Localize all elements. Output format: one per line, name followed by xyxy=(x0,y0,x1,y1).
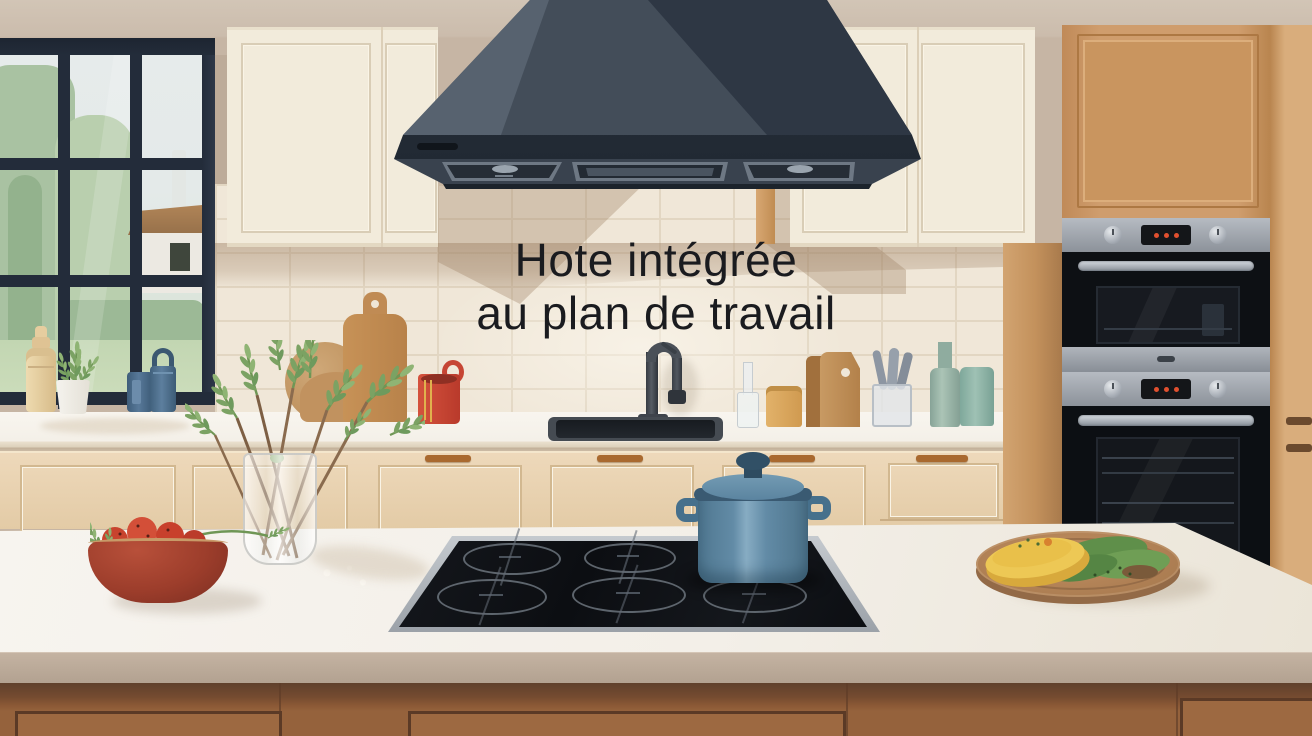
island-divider xyxy=(846,683,848,736)
drawer-handle-dark xyxy=(1286,417,1312,425)
board-food xyxy=(980,520,1180,595)
display-dot xyxy=(1154,387,1159,392)
sink xyxy=(548,417,723,441)
rack-line xyxy=(1102,502,1234,504)
faucet-spray-head xyxy=(668,390,686,404)
island-panel xyxy=(1180,698,1312,736)
hood-light-left xyxy=(492,165,518,173)
container-silhouette xyxy=(1202,304,1224,336)
base-door-handle xyxy=(597,455,643,462)
oven-display xyxy=(1141,225,1191,245)
glass-bottle xyxy=(737,362,757,426)
sill-plant-leaves xyxy=(52,338,100,386)
bowl-rim xyxy=(88,538,228,548)
drawer-stack xyxy=(880,451,1003,529)
counter-highlight xyxy=(40,418,190,434)
island-panel xyxy=(408,711,846,736)
display-dot xyxy=(1174,233,1179,238)
glass-bottle-neck xyxy=(743,362,753,395)
knife-block-front xyxy=(820,352,860,427)
teal-canister xyxy=(960,367,994,426)
green-glass-bottle xyxy=(930,342,960,427)
mid-strip-vent xyxy=(1157,356,1175,362)
rack-line xyxy=(1102,472,1234,474)
oven-lower-control-panel xyxy=(1062,372,1270,406)
glass-bottle-body xyxy=(737,392,759,428)
island-base xyxy=(0,683,1312,736)
oven-knob xyxy=(1209,226,1227,244)
window-mullion-h2 xyxy=(0,275,202,287)
oven-display xyxy=(1141,379,1191,399)
hood-light-right xyxy=(787,165,813,173)
display-dot xyxy=(1154,233,1159,238)
base-door-handle xyxy=(425,455,471,462)
base-door xyxy=(550,465,694,531)
blue-canister xyxy=(150,348,176,412)
glass-reflection xyxy=(1121,286,1178,344)
blue-canister-band xyxy=(153,372,173,374)
wood-door-panel xyxy=(1077,34,1259,208)
window-mullion-h1 xyxy=(0,158,202,170)
island-panel xyxy=(15,711,282,736)
hood-light-left-bar xyxy=(495,175,513,177)
island-edge-band xyxy=(0,652,1312,684)
oven-handle xyxy=(1078,261,1254,271)
window-mullion-v2 xyxy=(130,55,142,409)
display-dot xyxy=(1164,233,1169,238)
window-frame-top xyxy=(0,38,215,55)
mug-stripe xyxy=(430,380,432,422)
drawer-front xyxy=(888,463,999,519)
drawer-handle-dark xyxy=(1286,444,1312,452)
faucet-downpipe xyxy=(672,358,682,392)
caption-line-1: Hote intégrée xyxy=(306,234,1006,287)
sill-plant xyxy=(52,338,100,414)
oven-upper-control-panel xyxy=(1062,218,1270,252)
oven-handle xyxy=(1078,415,1254,426)
faucet xyxy=(620,340,700,422)
knife-block-hole xyxy=(841,368,850,377)
oven-knob xyxy=(1104,226,1122,244)
kitchen-illustration: Hote intégrée au plan de travail xyxy=(0,0,1312,736)
cabinet-door xyxy=(241,43,371,233)
mug-interior xyxy=(421,374,457,384)
caption: Hote intégrée au plan de travail xyxy=(306,234,1006,340)
oven-knob xyxy=(1104,380,1122,398)
display-dot xyxy=(1174,387,1179,392)
hood-vent-slot xyxy=(417,143,458,150)
house-window xyxy=(170,243,190,271)
sink-basin xyxy=(556,420,715,438)
red-mug xyxy=(418,360,466,424)
white-pot xyxy=(56,380,90,414)
oven-upper-door xyxy=(1062,252,1270,347)
pot-body xyxy=(698,496,808,583)
rack-line xyxy=(1102,457,1234,459)
green-bottle-body xyxy=(930,368,960,427)
utensil-crock xyxy=(872,350,912,427)
crock-glass xyxy=(872,384,912,427)
rack-line xyxy=(1104,328,1232,330)
oven-knob xyxy=(1209,380,1227,398)
amber-jar xyxy=(766,386,802,427)
cabinet-door xyxy=(921,43,1025,233)
oven-upper-window xyxy=(1096,286,1240,344)
stock-pot xyxy=(676,450,831,585)
drawer-handle xyxy=(916,455,968,462)
range-hood xyxy=(394,0,921,192)
cream-bottle-ridge xyxy=(28,366,54,368)
oven-mid-strip xyxy=(1062,347,1270,372)
blue-jar-label xyxy=(132,380,141,404)
pot-lid-knob xyxy=(736,452,770,470)
tall-oven-cabinet xyxy=(1062,25,1270,595)
paddle-board-hole xyxy=(371,300,379,308)
island-divider xyxy=(1176,683,1178,736)
caption-line-2: au plan de travail xyxy=(306,287,1006,340)
island-divider xyxy=(279,683,281,736)
tall-cabinet-side xyxy=(1003,243,1062,533)
cabinet-divider xyxy=(381,27,383,247)
display-dot xyxy=(1164,387,1169,392)
wood-door-panel-inner xyxy=(1083,40,1253,202)
